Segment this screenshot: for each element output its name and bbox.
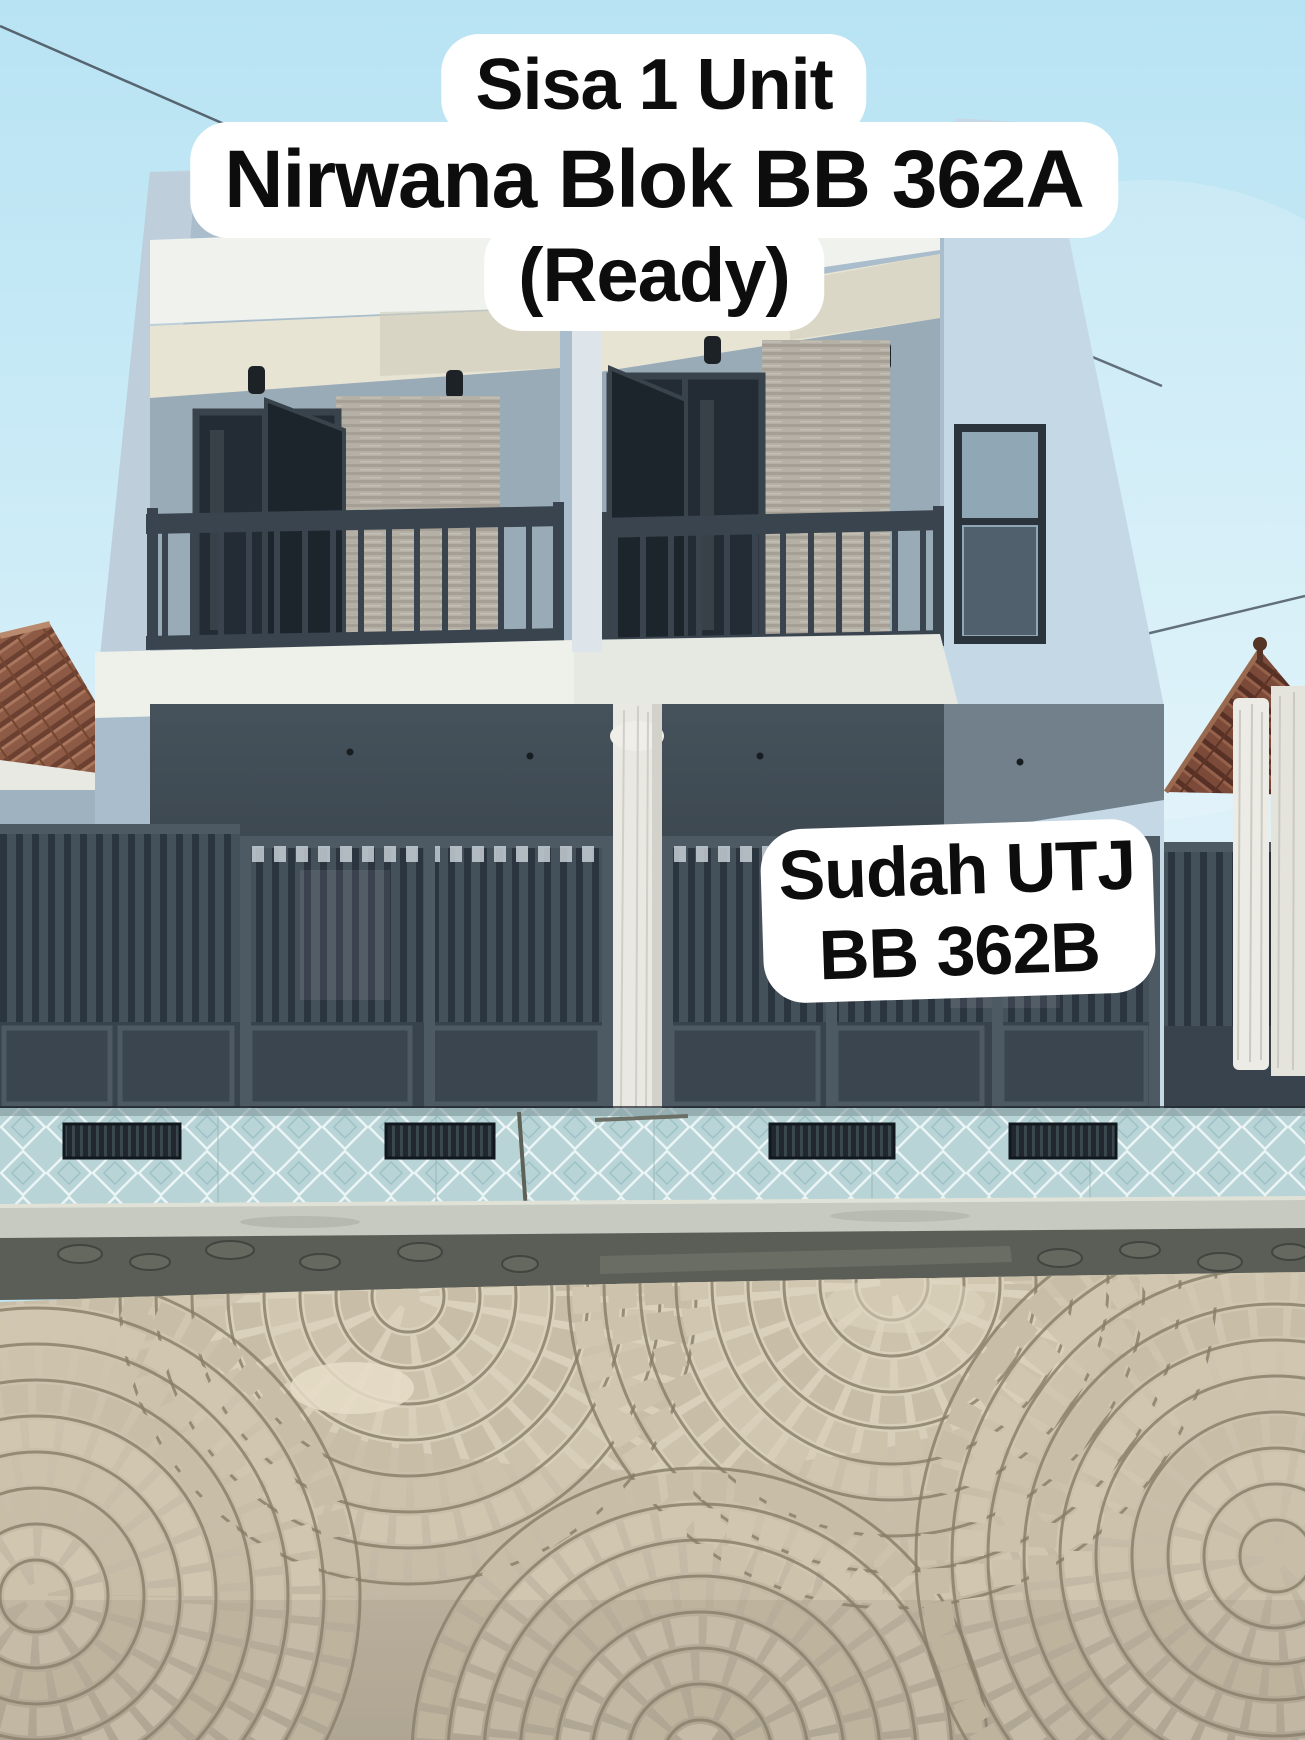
drain-grate bbox=[1010, 1124, 1116, 1158]
sold-badge: Sudah UTJ BB 362B bbox=[759, 818, 1156, 1004]
drain-grate bbox=[64, 1124, 180, 1158]
wrapped-center-pillar bbox=[610, 704, 664, 1112]
sold-badge-line-2: BB 362B bbox=[818, 907, 1101, 997]
downlight bbox=[446, 370, 463, 398]
downlight bbox=[248, 366, 265, 394]
drain-grate bbox=[386, 1124, 494, 1158]
caption-line-2: Nirwana Blok BB 362A bbox=[190, 122, 1118, 238]
real-estate-photo-post: Sisa 1 Unit Nirwana Blok BB 362A (Ready)… bbox=[0, 0, 1305, 1740]
roof-finial bbox=[1253, 637, 1267, 651]
center-column bbox=[572, 306, 602, 652]
sold-badge-line-1: Sudah UTJ bbox=[777, 824, 1136, 916]
drain-grate bbox=[770, 1124, 894, 1158]
caption-line-3: (Ready) bbox=[484, 222, 824, 331]
floor-slab-band bbox=[574, 634, 958, 704]
downlight bbox=[704, 336, 721, 364]
wrapped-columns-right bbox=[1233, 686, 1305, 1076]
side-window bbox=[958, 428, 1042, 640]
open-door-panel bbox=[610, 368, 686, 652]
top-caption: Sisa 1 Unit Nirwana Blok BB 362A (Ready) bbox=[190, 34, 1118, 323]
